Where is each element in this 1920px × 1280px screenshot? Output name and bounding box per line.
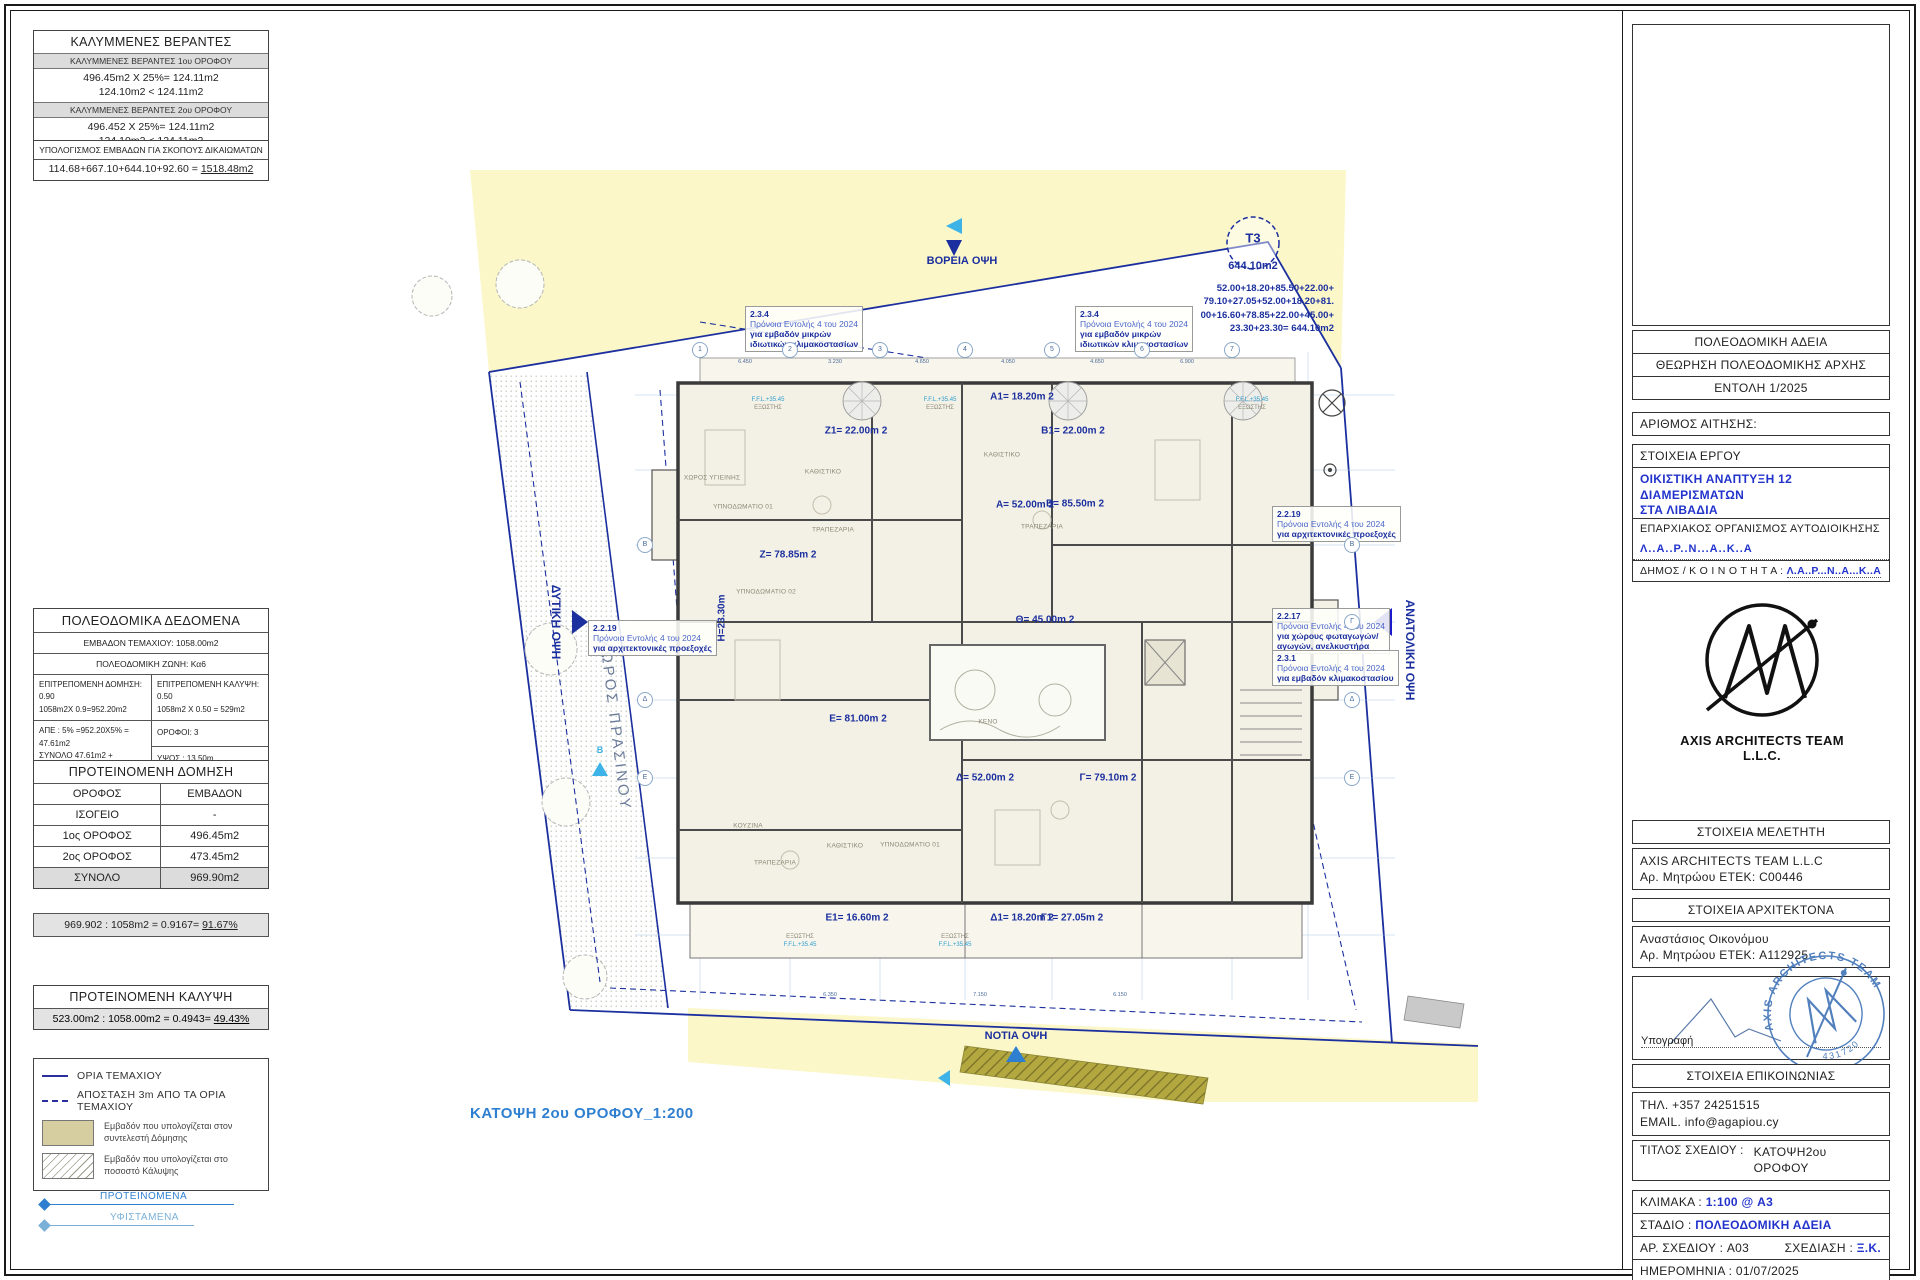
note-code: 2.3.1 bbox=[1277, 653, 1394, 663]
apartment-label-e: E= 81.00m 2 bbox=[829, 714, 887, 725]
designer-name: AXIS ARCHITECTS TEAM L.L.C bbox=[1640, 853, 1882, 869]
ffl-marker: F.F.L.+35.45 ΕΞΩΣΤΗΣ bbox=[752, 396, 785, 413]
t3-sum-line: 52.00+18.20+85.50+22.00+ bbox=[1152, 282, 1334, 295]
phone-value: ΤΗΛ. +357 24251515 bbox=[1640, 1097, 1882, 1114]
designer-header: ΣΤΟΙΧΕΙΑ ΜΕΛΕΤΗΤΗ bbox=[1633, 821, 1889, 843]
diamond-icon bbox=[38, 1219, 51, 1232]
drawing-title-row: ΤΙΤΛΟΣ ΣΧΕΔΙΟΥ : ΚΑΤΟΨΗ2ου ΟΡΟΦΟΥ bbox=[1633, 1141, 1889, 1180]
approval-stamp-box bbox=[1632, 24, 1890, 326]
existing-marker: ΥΦΙΣΤΑΜΕΝΑ bbox=[40, 1221, 280, 1230]
t3-code: T3 bbox=[1245, 231, 1260, 246]
verandas-table: ΚΑΛΥΜΜΕΝΕΣ ΒΕΡΑΝΤΕΣ ΚΑΛΥΜΜΕΝΕΣ ΒΕΡΑΝΤΕΣ … bbox=[33, 30, 269, 153]
application-box: ΑΡΙΘΜΟΣ ΑΙΤΗΣΗΣ: bbox=[1632, 412, 1890, 436]
district-value: Λ..Α..Ρ..Ν...Α..Κ..Α bbox=[1633, 539, 1889, 560]
proposed-coverage-table: ΠΡΟΤΕΙΝΟΜΕΝΗ ΚΑΛΥΨΗ 523.00m2 : 1058.00m2… bbox=[33, 985, 269, 1030]
logo-text: AXIS ARCHITECTS TEAM L.L.C. bbox=[1677, 733, 1847, 763]
apartment-label-theta: Θ= 45.00m 2 bbox=[1016, 615, 1075, 626]
coverage-hatch-swatch-icon bbox=[42, 1153, 94, 1179]
density-calc: 1058m2X 0.9=952.20m2 bbox=[39, 704, 146, 716]
rights-calc-value: 114.68+667.10+644.10+92.60 = 1518.48m2 bbox=[34, 160, 268, 180]
legend-item-boundary: ΟΡΙΑ ΤΕΜΑΧΙΟΥ bbox=[42, 1070, 260, 1082]
apartment-label-g1: Γ1= 27.05m 2 bbox=[1041, 913, 1103, 924]
axis-bubble: 2 bbox=[782, 342, 798, 358]
balcony-label: ΕΞΩΣΤΗΣ bbox=[784, 933, 817, 941]
ffl-marker: F.F.L.+35.45 ΕΞΩΣΤΗΣ bbox=[1236, 396, 1269, 413]
axis-bubble: Ε bbox=[637, 770, 653, 786]
drawing-title-value: ΚΑΤΟΨΗ2ου ΟΡΟΦΟΥ bbox=[1754, 1145, 1827, 1176]
coverage-cell: ΕΠΙΤΡΕΠΟΜΕΝΗ ΚΑΛΥΨΗ: 0.50 1058m2 X 0.50 … bbox=[151, 675, 268, 720]
architect-logo: AXIS ARCHITECTS TEAM L.L.C. bbox=[1677, 598, 1847, 763]
contact-info: ΤΗΛ. +357 24251515 EMAIL. info@agapiou.c… bbox=[1633, 1093, 1889, 1135]
dimension-text: 4.650 bbox=[1090, 359, 1104, 365]
ffl-marker: ΕΞΩΣΤΗΣ F.F.L.+35.45 bbox=[939, 933, 972, 950]
design-value: Ξ.Κ. bbox=[1857, 1241, 1881, 1255]
table-row: - bbox=[160, 804, 268, 825]
plan-caption: ΚΑΤΟΨΗ 2ου ΟΡΟΦΟΥ_1:200 bbox=[470, 1105, 694, 1122]
ffl-marker: F.F.L.+35.45 ΕΞΩΣΤΗΣ bbox=[924, 396, 957, 413]
axis-bubble: Β bbox=[1344, 537, 1360, 553]
apartment-label-z1: Z1= 22.00m 2 bbox=[825, 426, 888, 437]
note-line: για αρχιτεκτονικές προεξοχές bbox=[593, 643, 712, 653]
proposed-density-grid: ΟΡΟΦΟΣ ΕΜΒΑΔΟΝ ΙΣΟΓΕΙΟ - 1ος ΟΡΟΦΟΣ 496.… bbox=[34, 783, 268, 888]
ffl-value: F.F.L.+35.45 bbox=[784, 941, 817, 949]
room-label: ΤΡΑΠΕΖΑΡΙΑ bbox=[754, 860, 796, 867]
note-line: για χώρους φωταγωγών/ bbox=[1277, 631, 1385, 641]
number-design-row: ΑΡ. ΣΧΕΔΙΟΥ : A03 ΣΧΕΔΙΑΣΗ : Ξ.Κ. bbox=[1633, 1236, 1889, 1259]
scale-label: ΚΛΙΜΑΚΑ : bbox=[1640, 1195, 1706, 1209]
project-box: ΣΤΟΙΧΕΙΑ ΕΡΓΟΥ ΟΙΚΙΣΤΙΚΗ ΑΝΑΠΤΥΞΗ 12 ΔΙΑ… bbox=[1632, 444, 1890, 524]
note-line: Πρόνοια Εντολής 4 του 2024 bbox=[1277, 663, 1394, 673]
verandas-subheader-1: ΚΑΛΥΜΜΕΝΕΣ ΒΕΡΑΝΤΕΣ 1ου ΟΡΟΦΟΥ bbox=[34, 53, 268, 69]
note-line: Πρόνοια Εντολής 4 του 2024 bbox=[1277, 621, 1385, 631]
proposed-coverage-title: ΠΡΟΤΕΙΝΟΜΕΝΗ ΚΑΛΥΨΗ bbox=[34, 986, 268, 1008]
ffl-value: F.F.L.+35.45 bbox=[924, 396, 957, 404]
compass-icon bbox=[1319, 390, 1345, 476]
room-label: ΚΟΥΖΙΝΑ bbox=[733, 823, 763, 830]
dimension-text: 6.150 bbox=[1113, 992, 1127, 998]
room-label: ΚΑΘΙΣΤΙΚΟ bbox=[805, 469, 841, 476]
floors-value: ΟΡΟΦΟΙ: 3 bbox=[152, 721, 268, 746]
scale-row: ΚΛΙΜΑΚΑ : 1:100 @ A3 bbox=[1633, 1191, 1889, 1213]
t3-area: 644.10m2 bbox=[1228, 260, 1278, 272]
verandas-title: ΚΑΛΥΜΜΕΝΕΣ ΒΕΡΑΝΤΕΣ bbox=[34, 31, 268, 53]
designer-info: AXIS ARCHITECTS TEAM L.L.C Αρ. Μητρώου Ε… bbox=[1633, 849, 1889, 889]
table-row: 2ος ΟΡΟΦΟΣ bbox=[34, 846, 160, 867]
dimension-text: 3.230 bbox=[828, 359, 842, 365]
note-line: Πρόνοια Εντολής 4 του 2024 bbox=[1080, 319, 1188, 329]
axis-bubble: Ε bbox=[1344, 770, 1360, 786]
dimension-text: 4.050 bbox=[1001, 359, 1015, 365]
dimension-text: 4.650 bbox=[915, 359, 929, 365]
building-plan bbox=[652, 358, 1338, 958]
design-by: ΣΧΕΔΙΑΣΗ : Ξ.Κ. bbox=[1785, 1241, 1881, 1255]
apartment-label-z: Z= 78.85m 2 bbox=[760, 550, 817, 561]
district-box: ΕΠΑΡΧΙΑΚΟΣ ΟΡΓΑΝΙΣΜΟΣ ΑΥΤΟΔΙΟΙΚΗΣΗΣ Λ..Α… bbox=[1632, 518, 1890, 582]
contact-header-box: ΣΤΟΙΧΕΙΑ ΕΠΙΚΟΙΝΩΝΙΑΣ bbox=[1632, 1064, 1890, 1088]
room-label: ΚΑΘΙΣΤΙΚΟ bbox=[984, 452, 1020, 459]
axis-bubble: Γ bbox=[1344, 614, 1360, 630]
north-elevation-label: ΒΟΡΕΙΑ ΟΨΗ bbox=[927, 255, 998, 267]
balcony-label: ΕΞΩΣΤΗΣ bbox=[924, 404, 957, 412]
density-ratio-formula: 969.902 : 1058m2 = 0.9167= bbox=[64, 919, 202, 931]
email-value: EMAIL. info@agapiou.cy bbox=[1640, 1114, 1882, 1131]
note-code: 2.2.17 bbox=[1277, 611, 1385, 621]
logo-icon bbox=[1677, 598, 1847, 728]
stage-row: ΣΤΑΔΙΟ : ΠΟΛΕΟΔΟΜΙΚΗ ΑΔΕΙΑ bbox=[1633, 1213, 1889, 1236]
legend-label-line: συντελεστή Δόμησης bbox=[104, 1133, 232, 1145]
existing-label: ΥΦΙΣΤΑΜΕΝΑ bbox=[110, 1212, 179, 1223]
designer-content-box: AXIS ARCHITECTS TEAM L.L.C Αρ. Μητρώου Ε… bbox=[1632, 848, 1890, 890]
courtyard-void bbox=[930, 645, 1105, 740]
note-line: Πρόνοια Εντολής 4 του 2024 bbox=[1277, 519, 1396, 529]
plot-area-row: ΕΜΒΑΔΟΝ ΤΕΜΑΧΙΟΥ: 1058.00m2 bbox=[34, 632, 268, 653]
axis-bubble: Δ bbox=[1344, 692, 1360, 708]
table-row-total: 969.90m2 bbox=[160, 867, 268, 888]
permit-rows-box: ΠΟΛΕΟΔΟΜΙΚΗ ΑΔΕΙΑ ΘΕΩΡΗΣΗ ΠΟΛΕΟΔΟΜΙΚΗΣ Α… bbox=[1632, 330, 1890, 400]
contact-header: ΣΤΟΙΧΕΙΑ ΕΠΙΚΟΙΝΩΝΙΑΣ bbox=[1633, 1065, 1889, 1087]
designer-header-box: ΣΤΟΙΧΕΙΑ ΜΕΛΕΤΗΤΗ bbox=[1632, 820, 1890, 844]
scale-value: 1:100 @ A3 bbox=[1706, 1195, 1773, 1209]
district-header: ΕΠΑΡΧΙΑΚΟΣ ΟΡΓΑΝΙΣΜΟΣ ΑΥΤΟΔΙΟΙΚΗΣΗΣ bbox=[1633, 519, 1889, 539]
room-label: ΥΠΝΟΔΩΜΑΤΙΟ 01 bbox=[880, 842, 940, 849]
veranda-calc-line: 124.10m2 < 124.11m2 bbox=[34, 86, 268, 100]
axis-bubble: Β bbox=[637, 537, 653, 553]
b-marker: B bbox=[597, 745, 604, 755]
date-value: 01/07/2025 bbox=[1736, 1264, 1799, 1278]
rights-result: 1518.48m2 bbox=[201, 163, 254, 175]
density-title: ΕΠΙΤΡΕΠΟΜΕΝΗ ΔΟΜΗΣΗ: 0.90 bbox=[39, 679, 146, 704]
proposed-label: ΠΡΟΤΕΙΝΟΜΕΝΑ bbox=[100, 1191, 187, 1202]
proposed-marker: ΠΡΟΤΕΙΝΟΜΕΝΑ bbox=[40, 1200, 280, 1209]
municipality-label: ΔΗΜΟΣ / Κ Ο Ι Ν Ο Τ Η Τ Α : bbox=[1640, 565, 1783, 577]
stage-label: ΣΤΑΔΙΟ : bbox=[1640, 1218, 1695, 1232]
axis-bubble: 1 bbox=[692, 342, 708, 358]
note-code: 2.2.19 bbox=[1277, 509, 1396, 519]
note-line: για εμβαδόν κλιμακοστασίου bbox=[1277, 673, 1394, 683]
ffl-value: F.F.L.+35.45 bbox=[939, 941, 972, 949]
apartment-label-a1: A1= 18.20m 2 bbox=[990, 392, 1054, 403]
rights-formula: 114.68+667.10+644.10+92.60 = bbox=[49, 163, 201, 175]
apartment-label-e1: E1= 16.60m 2 bbox=[825, 913, 888, 924]
balcony-label: ΕΞΩΣΤΗΣ bbox=[939, 933, 972, 941]
col-header-floor: ΟΡΟΦΟΣ bbox=[34, 784, 160, 804]
ffl-value: F.F.L.+35.45 bbox=[1236, 396, 1269, 404]
verandas-subheader-2: ΚΑΛΥΜΜΕΝΕΣ ΒΕΡΑΝΤΕΣ 2ου ΟΡΟΦΟΥ bbox=[34, 102, 268, 118]
permit-row: ΠΟΛΕΟΔΟΜΙΚΗ ΑΔΕΙΑ bbox=[1633, 331, 1889, 353]
project-name-line: ΟΙΚΙΣΤΙΚΗ ΑΝΑΠΤΥΞΗ 12 ΔΙΑΜΕΡΙΣΜΑΤΩΝ bbox=[1640, 472, 1882, 503]
legend-item-coverage-area: Εμβαδόν που υπολογίζεται στο ποσοστό Κάλ… bbox=[42, 1153, 260, 1179]
ape-line: ΑΠΕ : 5% =952.20X5% = 47.61m2 bbox=[39, 725, 146, 750]
note-code: 2.2.19 bbox=[593, 623, 712, 633]
proposed-line-icon bbox=[44, 1204, 234, 1205]
proposed-existing-markers: ΠΡΟΤΕΙΝΟΜΕΝΑ ΥΦΙΣΤΑΜΕΝΑ bbox=[40, 1196, 280, 1234]
contact-content-box: ΤΗΛ. +357 24251515 EMAIL. info@agapiou.c… bbox=[1632, 1092, 1890, 1136]
offset-dash-icon bbox=[42, 1100, 68, 1102]
apartment-label-b1: B1= 22.00m 2 bbox=[1041, 426, 1105, 437]
note-line: Πρόνοια Εντολής 4 του 2024 bbox=[593, 633, 712, 643]
review-row: ΘΕΩΡΗΣΗ ΠΟΛΕΟΔΟΜΙΚΗΣ ΑΡΧΗΣ bbox=[1633, 353, 1889, 376]
drawing-title-line: ΟΡΟΦΟΥ bbox=[1754, 1161, 1827, 1177]
apartment-label-g: Γ= 79.10m 2 bbox=[1080, 773, 1137, 784]
apartment-label-b: B= 85.50m 2 bbox=[1046, 499, 1104, 510]
number-value: A03 bbox=[1727, 1241, 1749, 1255]
legend-label: ΑΠΟΣΤΑΣΗ 3m ΑΠΟ ΤΑ ΟΡΙΑ ΤΕΜΑΧΙΟΥ bbox=[77, 1089, 260, 1113]
coverage-formula: 523.00m2 : 1058.00m2 = 0.4943= bbox=[53, 1013, 214, 1025]
apartment-label-d: Δ= 52.00m 2 bbox=[956, 773, 1014, 784]
veranda-calc-line: 496.452 X 25%= 124.11m2 bbox=[34, 121, 268, 135]
table-row: ΙΣΟΓΕΙΟ bbox=[34, 804, 160, 825]
drawing-title-box: ΤΙΤΛΟΣ ΣΧΕΔΙΟΥ : ΚΑΤΟΨΗ2ου ΟΡΟΦΟΥ bbox=[1632, 1140, 1890, 1181]
ffl-value: F.F.L.+35.45 bbox=[752, 396, 785, 404]
axis-bubble: 5 bbox=[1044, 342, 1060, 358]
note-2219-right: 2.2.19 Πρόνοια Εντολής 4 του 2024 για αρ… bbox=[1272, 506, 1401, 542]
room-label: ΥΠΝΟΔΩΜΑΤΙΟ 02 bbox=[736, 589, 796, 596]
balcony-label: ΕΞΩΣΤΗΣ bbox=[752, 404, 785, 412]
east-elevation-label: ΑΝΑΤΟΛΙΚΗ ΟΨΗ bbox=[1403, 600, 1417, 701]
boundary-line-icon bbox=[42, 1075, 68, 1077]
table-row: 496.45m2 bbox=[160, 825, 268, 846]
planning-title: ΠΟΛΕΟΔΟΜΙΚΑ ΔΕΔΟΜΕΝΑ bbox=[34, 609, 268, 632]
axis-bubble: Δ bbox=[637, 692, 653, 708]
legend-label: Εμβαδόν που υπολογίζεται στο ποσοστό Κάλ… bbox=[104, 1154, 228, 1177]
density-cell: ΕΠΙΤΡΕΠΟΜΕΝΗ ΔΟΜΗΣΗ: 0.90 1058m2X 0.9=95… bbox=[34, 675, 151, 720]
note-line: για αρχιτεκτονικές προεξοχές bbox=[1277, 529, 1396, 539]
south-elevation-label: ΝΟΤΙΑ ΟΨΗ bbox=[985, 1030, 1048, 1042]
dimension-text: 6.900 bbox=[1180, 359, 1194, 365]
existing-line-icon bbox=[44, 1225, 194, 1226]
note-code: 2.3.4 bbox=[750, 309, 858, 319]
table-row: 1ος ΟΡΟΦΟΣ bbox=[34, 825, 160, 846]
signature-box: Υπογραφή AXIS ARCHITECTS TEAM LLC 431720 bbox=[1632, 976, 1890, 1060]
room-label: ΚΕΝΟ bbox=[978, 719, 997, 726]
date-row: ΗΜΕΡΟΜΗΝΙΑ : 01/07/2025 bbox=[1633, 1259, 1889, 1280]
legend-item-offset: ΑΠΟΣΤΑΣΗ 3m ΑΠΟ ΤΑ ΟΡΙΑ ΤΕΜΑΧΙΟΥ bbox=[42, 1089, 260, 1113]
table-row-total: ΣΥΝΟΛΟ bbox=[34, 867, 160, 888]
note-234-left: 2.3.4 Πρόνοια Εντολής 4 του 2024 για εμβ… bbox=[745, 306, 863, 352]
proposed-density-title: ΠΡΟΤΕΙΝΟΜΕΝΗ ΔΟΜΗΣΗ bbox=[34, 761, 268, 783]
room-label: ΚΑΘΙΣΤΙΚΟ bbox=[827, 843, 863, 850]
balcony-label: ΕΞΩΣΤΗΣ bbox=[1236, 404, 1269, 412]
legend-label-line: Εμβαδόν που υπολογίζεται στο bbox=[104, 1154, 228, 1166]
room-label: ΥΠΝΟΔΩΜΑΤΙΟ 01 bbox=[713, 504, 773, 511]
axis-bubble: 6 bbox=[1134, 342, 1150, 358]
proposed-density-table: ΠΡΟΤΕΙΝΟΜΕΝΗ ΔΟΜΗΣΗ ΟΡΟΦΟΣ ΕΜΒΑΔΟΝ ΙΣΟΓΕ… bbox=[33, 760, 269, 889]
coverage-title: ΕΠΙΤΡΕΠΟΜΕΝΗ ΚΑΛΥΨΗ: 0.50 bbox=[157, 679, 263, 704]
zone-row: ΠΟΛΕΟΔΟΜΙΚΗ ΖΩΝΗ: Κα6 bbox=[34, 653, 268, 674]
application-label: ΑΡΙΘΜΟΣ ΑΙΤΗΣΗΣ: bbox=[1633, 413, 1889, 435]
axis-bubble: 7 bbox=[1224, 342, 1240, 358]
axis-bubble: 3 bbox=[872, 342, 888, 358]
density-swatch-icon bbox=[42, 1120, 94, 1146]
designer-registration: Αρ. Μητρώου ΕΤΕΚ: C00446 bbox=[1640, 869, 1882, 885]
legend-label-line: Εμβαδόν που υπολογίζεται στον bbox=[104, 1121, 232, 1133]
coverage-calc: 1058m2 X 0.50 = 529m2 bbox=[157, 704, 263, 716]
west-elevation-label: ΔΥΤΙΚΗ ΟΨΗ bbox=[549, 585, 563, 660]
diamond-icon bbox=[38, 1198, 51, 1211]
apartment-label-h: Η=23.30m bbox=[717, 595, 728, 642]
table-row: 473.45m2 bbox=[160, 846, 268, 867]
coverage-result: 49.43% bbox=[214, 1013, 250, 1025]
density-ratio-result: 91.67% bbox=[202, 919, 238, 931]
design-label: ΣΧΕΔΙΑΣΗ : bbox=[1785, 1241, 1857, 1255]
room-label: ΤΡΑΠΕΖΑΡΙΑ bbox=[1021, 524, 1063, 531]
number-label: ΑΡ. ΣΧΕΔΙΟΥ : bbox=[1640, 1241, 1727, 1255]
note-line: Πρόνοια Εντολής 4 του 2024 bbox=[750, 319, 858, 329]
project-name: ΟΙΚΙΣΤΙΚΗ ΑΝΑΠΤΥΞΗ 12 ΔΙΑΜΕΡΙΣΜΑΤΩΝ ΣΤΑ … bbox=[1633, 467, 1889, 523]
green-strip bbox=[489, 372, 668, 1010]
project-header: ΣΤΟΙΧΕΙΑ ΕΡΓΟΥ bbox=[1633, 445, 1889, 467]
legend-label-line: ποσοστό Κάλυψης bbox=[104, 1166, 228, 1178]
municipality-value: Λ.Α..Ρ...Ν..Α...Κ..Α bbox=[1787, 565, 1882, 578]
room-label: ΧΩΡΟΣ ΥΓΙΕΙΝΗΣ bbox=[684, 475, 740, 482]
density-ratio-box: 969.902 : 1058m2 = 0.9167= 91.67% bbox=[33, 913, 269, 937]
ffl-marker: ΕΞΩΣΤΗΣ F.F.L.+35.45 bbox=[784, 933, 817, 950]
drawing-title-label: ΤΙΤΛΟΣ ΣΧΕΔΙΟΥ : bbox=[1640, 1145, 1744, 1176]
verandas-values-1: 496.45m2 X 25%= 124.11m2 124.10m2 < 124.… bbox=[34, 69, 268, 102]
title-block: ΠΟΛΕΟΔΟΜΙΚΗ ΑΔΕΙΑ ΘΕΩΡΗΣΗ ΠΟΛΕΟΔΟΜΙΚΗΣ Α… bbox=[1632, 10, 1890, 1270]
project-name-line: ΣΤΑ ΛΙΒΑΔΙΑ bbox=[1640, 503, 1882, 519]
dimension-text: 6.450 bbox=[738, 359, 752, 365]
date-label: ΗΜΕΡΟΜΗΝΙΑ : bbox=[1640, 1264, 1736, 1278]
veranda-calc-line: 496.45m2 X 25%= 124.11m2 bbox=[34, 72, 268, 86]
coverage-ratio-row: 523.00m2 : 1058.00m2 = 0.4943= 49.43% bbox=[34, 1008, 268, 1029]
note-code: 2.3.4 bbox=[1080, 309, 1188, 319]
room-label: ΤΡΑΠΕΖΑΡΙΑ bbox=[812, 527, 854, 534]
legend-item-density-area: Εμβαδόν που υπολογίζεται στον συντελεστή… bbox=[42, 1120, 260, 1146]
dimension-text: 7.150 bbox=[973, 992, 987, 998]
stage-value: ΠΟΛΕΟΔΟΜΙΚΗ ΑΔΕΙΑ bbox=[1695, 1218, 1831, 1232]
legend-label: Εμβαδόν που υπολογίζεται στον συντελεστή… bbox=[104, 1121, 232, 1144]
axis-bubble: 4 bbox=[957, 342, 973, 358]
dimension-text: 6.350 bbox=[823, 992, 837, 998]
note-231: 2.3.1 Πρόνοια Εντολής 4 του 2024 για εμβ… bbox=[1272, 650, 1399, 686]
drawing-sheet: ΒΟΡΕΙΑ ΟΨΗ ΝΟΤΙΑ ΟΨΗ ΔΥΤΙΚΗ ΟΨΗ ΑΝΑΤΟΛΙΚ… bbox=[0, 0, 1920, 1280]
scale-box: ΚΛΙΜΑΚΑ : 1:100 @ A3 ΣΤΑΔΙΟ : ΠΟΛΕΟΔΟΜΙΚ… bbox=[1632, 1190, 1890, 1280]
municipality-row: ΔΗΜΟΣ / Κ Ο Ι Ν Ο Τ Η Τ Α : Λ.Α..Ρ...Ν..… bbox=[1633, 560, 1889, 581]
note-line: για εμβαδόν μικρών bbox=[1080, 329, 1188, 339]
note-line: ιδιωτικών κλιμακοστασίων bbox=[750, 339, 858, 349]
drawing-number: ΑΡ. ΣΧΕΔΙΟΥ : A03 bbox=[1640, 1241, 1749, 1255]
col-header-area: ΕΜΒΑΔΟΝ bbox=[160, 784, 268, 804]
note-line: για εμβαδόν μικρών bbox=[750, 329, 858, 339]
legend-box: ΟΡΙΑ ΤΕΜΑΧΙΟΥ ΑΠΟΣΤΑΣΗ 3m ΑΠΟ ΤΑ ΟΡΙΑ ΤΕ… bbox=[33, 1058, 269, 1191]
legend-label: ΟΡΙΑ ΤΕΜΑΧΙΟΥ bbox=[77, 1070, 162, 1082]
note-2217: 2.2.17 Πρόνοια Εντολής 4 του 2024 για χώ… bbox=[1272, 608, 1390, 654]
note-2219-left: 2.2.19 Πρόνοια Εντολής 4 του 2024 για αρ… bbox=[588, 620, 717, 656]
order-row: ΕΝΤΟΛΗ 1/2025 bbox=[1633, 376, 1889, 399]
drawing-title-line: ΚΑΤΟΨΗ2ου bbox=[1754, 1145, 1827, 1161]
rights-calc-table: ΥΠΟΛΟΓΙΣΜΟΣ ΕΜΒΑΔΩΝ ΓΙΑ ΣΚΟΠΟΥΣ ΔΙΚΑΙΩΜΑ… bbox=[33, 140, 269, 181]
rights-calc-title: ΥΠΟΛΟΓΙΣΜΟΣ ΕΜΒΑΔΩΝ ΓΙΑ ΣΚΟΠΟΥΣ ΔΙΚΑΙΩΜΑ… bbox=[34, 141, 268, 160]
